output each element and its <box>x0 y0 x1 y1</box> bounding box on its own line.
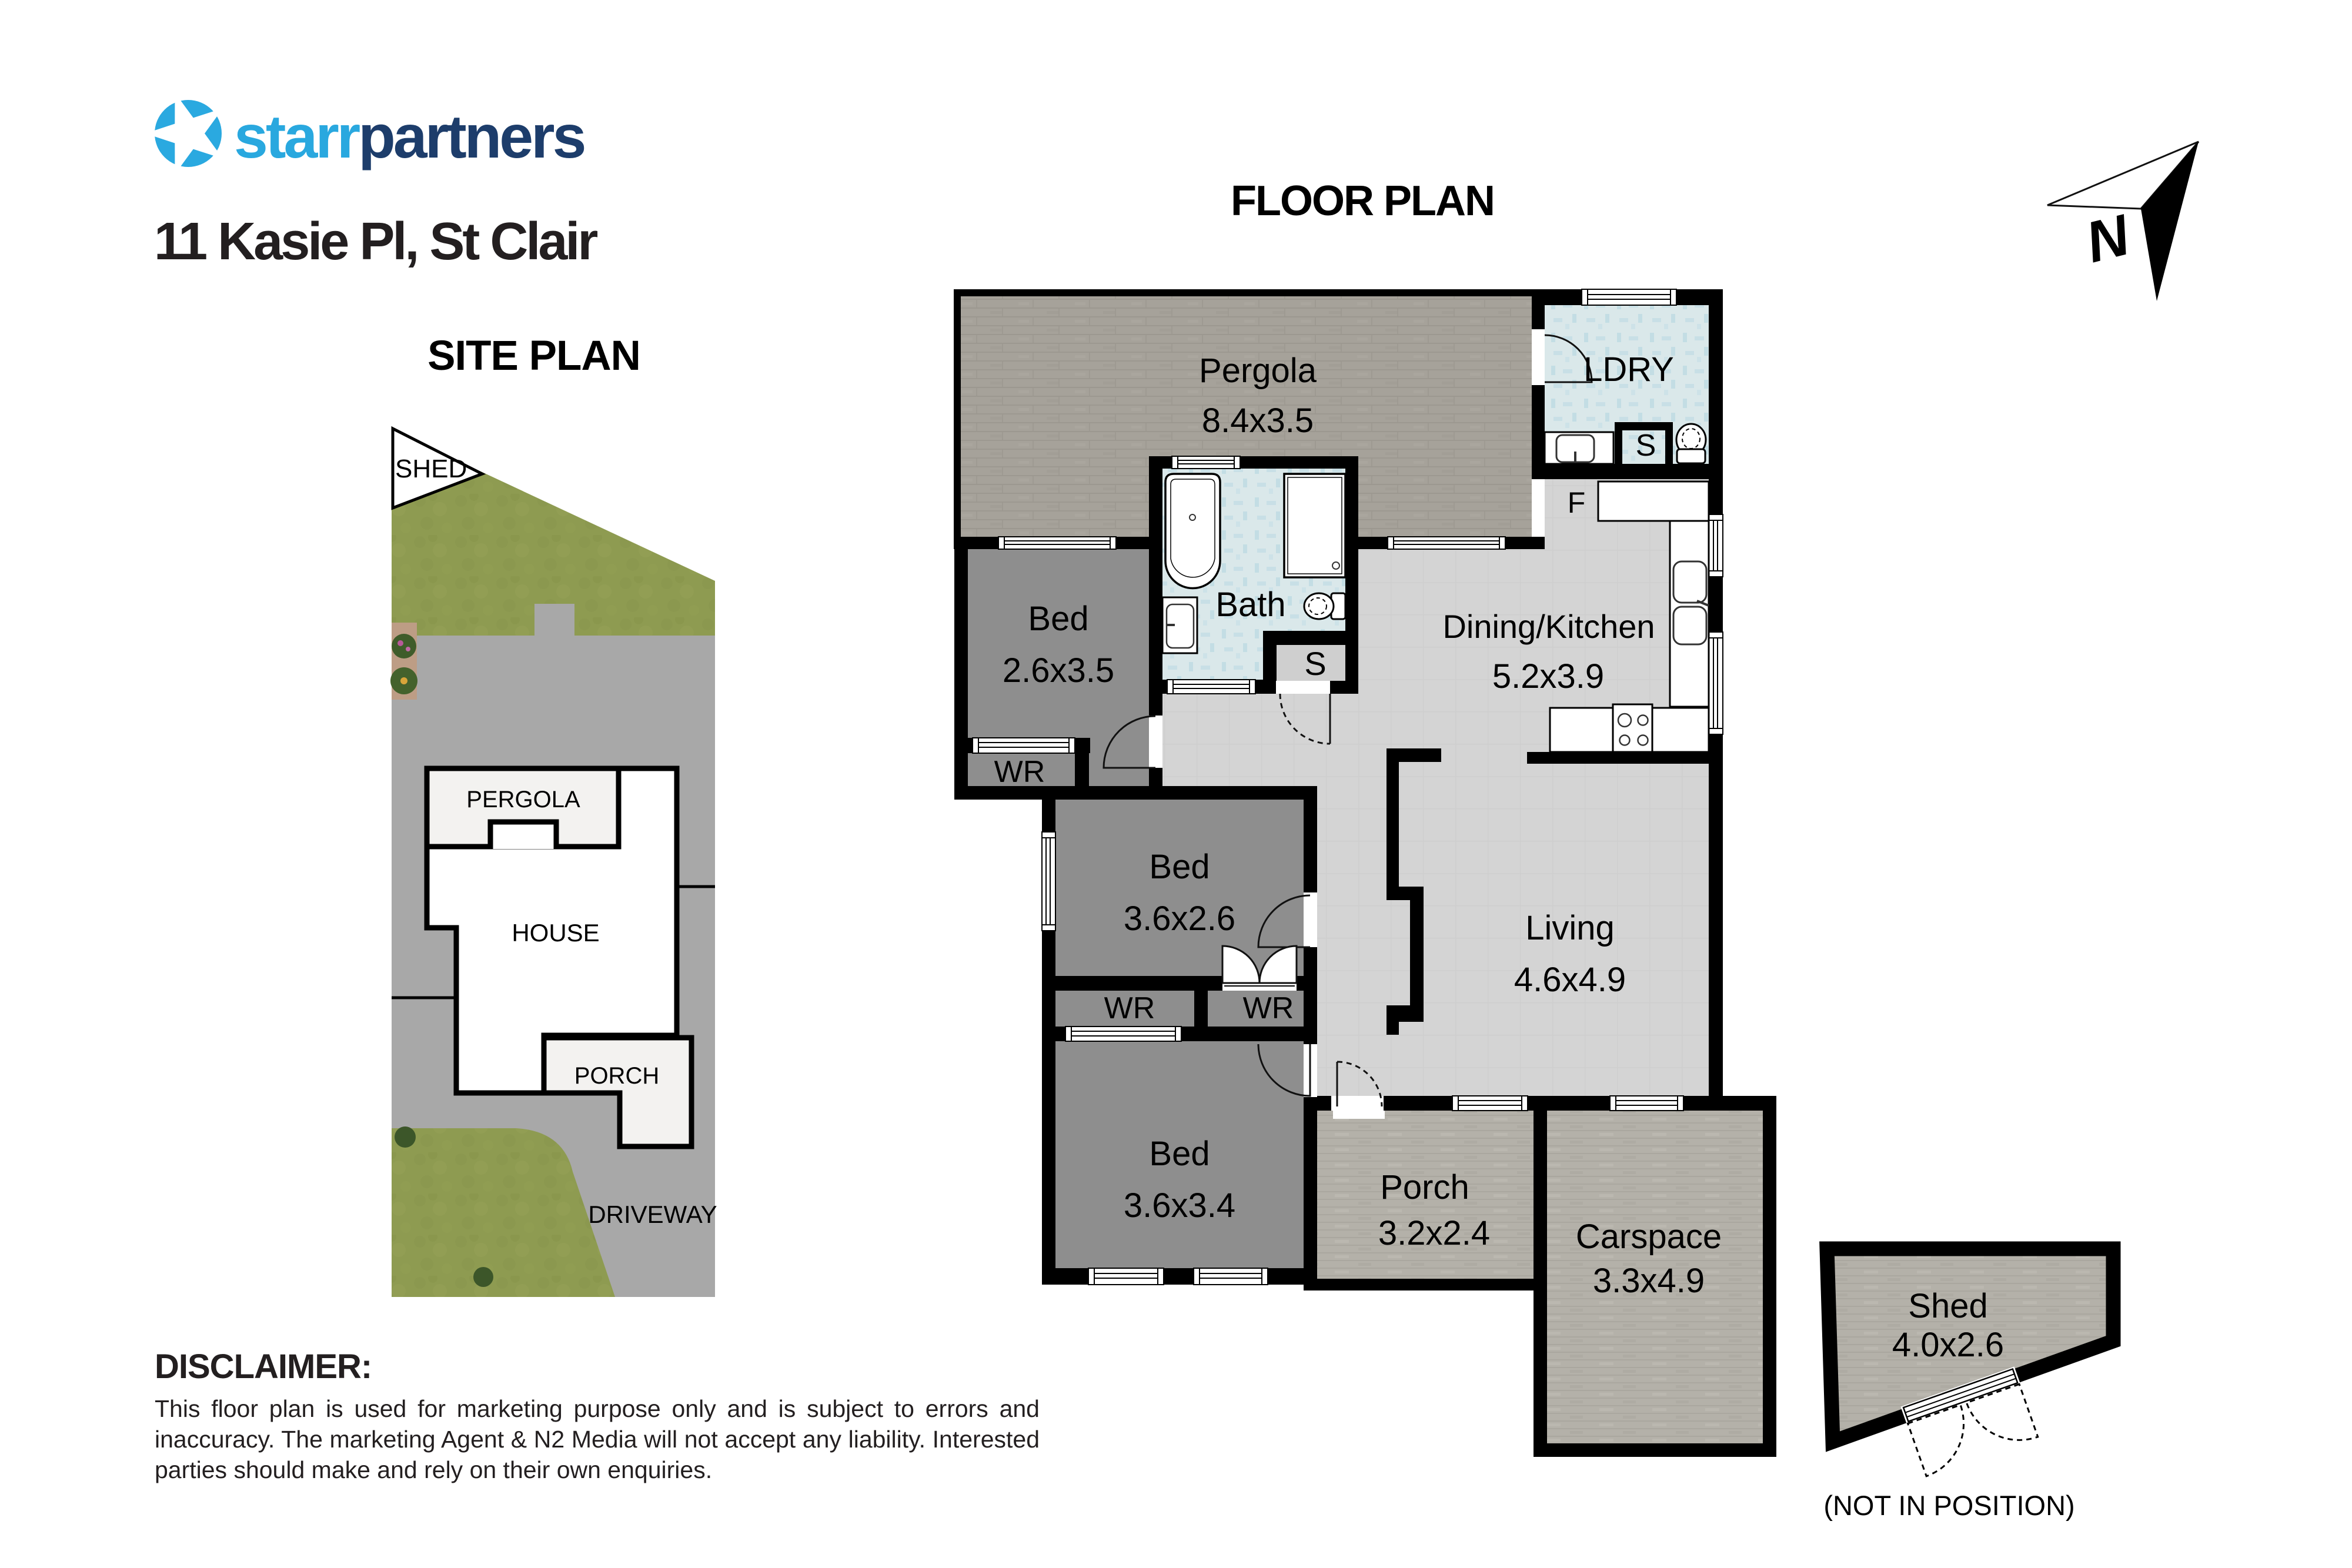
svg-text:3.3x4.9: 3.3x4.9 <box>1593 1262 1705 1300</box>
svg-text:11 Kasie Pl, St Clair: 11 Kasie Pl, St Clair <box>154 212 597 271</box>
svg-text:Pergola: Pergola <box>1199 352 1317 390</box>
svg-text:(NOT IN POSITION): (NOT IN POSITION) <box>1823 1490 2074 1521</box>
svg-text:WR: WR <box>1104 991 1155 1025</box>
svg-text:4.6x4.9: 4.6x4.9 <box>1514 961 1626 999</box>
svg-text:Bed: Bed <box>1028 600 1088 638</box>
svg-text:SITE PLAN: SITE PLAN <box>427 333 640 379</box>
svg-text:S: S <box>1636 429 1656 463</box>
svg-text:3.6x2.6: 3.6x2.6 <box>1124 900 1235 938</box>
svg-text:Dining/Kitchen: Dining/Kitchen <box>1442 608 1655 645</box>
svg-text:3.6x3.4: 3.6x3.4 <box>1124 1186 1235 1225</box>
svg-text:WR: WR <box>994 755 1045 789</box>
svg-text:S: S <box>1304 645 1326 682</box>
svg-text:PORCH: PORCH <box>574 1063 659 1089</box>
svg-text:HOUSE: HOUSE <box>512 919 599 947</box>
svg-text:Porch: Porch <box>1380 1168 1469 1206</box>
svg-text:Living: Living <box>1525 909 1615 947</box>
svg-text:LDRY: LDRY <box>1583 350 1674 389</box>
svg-text:2.6x3.5: 2.6x3.5 <box>1003 651 1114 690</box>
svg-text:WR: WR <box>1243 991 1294 1025</box>
svg-text:4.0x2.6: 4.0x2.6 <box>1892 1326 2004 1364</box>
svg-text:starrpartners: starrpartners <box>234 103 584 171</box>
svg-text:Bath: Bath <box>1215 586 1285 624</box>
svg-text:8.4x3.5: 8.4x3.5 <box>1202 402 1314 440</box>
svg-text:5.2x3.9: 5.2x3.9 <box>1492 657 1604 696</box>
svg-text:3.2x2.4: 3.2x2.4 <box>1378 1214 1490 1252</box>
svg-text:PERGOLA: PERGOLA <box>466 787 580 813</box>
svg-text:Bed: Bed <box>1149 848 1210 886</box>
svg-text:DRIVEWAY: DRIVEWAY <box>588 1201 717 1228</box>
svg-text:Shed: Shed <box>1908 1287 1987 1325</box>
svg-text:F: F <box>1568 486 1586 519</box>
svg-text:Carspace: Carspace <box>1576 1218 1722 1256</box>
svg-text:SHED: SHED <box>395 454 467 483</box>
svg-text:FLOOR PLAN: FLOOR PLAN <box>1231 178 1494 225</box>
svg-text:Bed: Bed <box>1149 1135 1210 1173</box>
